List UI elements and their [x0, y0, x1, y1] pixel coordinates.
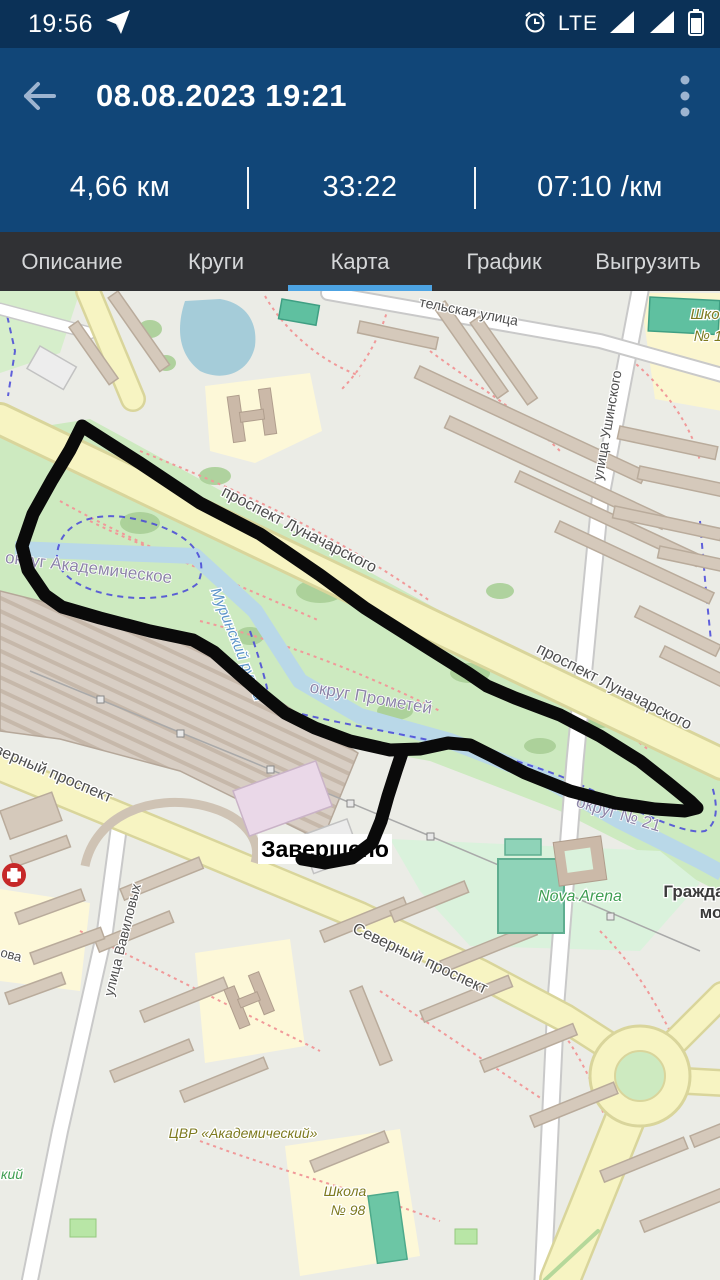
- battery-icon: [688, 8, 704, 41]
- lte-label: LTE: [558, 12, 598, 36]
- signal-icon: [608, 9, 638, 40]
- overflow-menu-button[interactable]: [650, 48, 720, 143]
- page-title: 08.08.2023 19:21: [80, 78, 650, 114]
- app-bar: 08.08.2023 19:21: [0, 48, 720, 143]
- map-label: Гражда: [663, 882, 720, 901]
- map-label: № 98: [331, 1202, 366, 1218]
- roundabout: [590, 1026, 690, 1126]
- stat-duration: 33:22: [240, 171, 480, 204]
- map-label: кий: [1, 1166, 23, 1182]
- map-label: Nova Arena: [538, 888, 622, 905]
- tab-map[interactable]: Карта: [288, 232, 432, 291]
- stats-divider: [247, 167, 249, 209]
- map-canvas: проспект Луначарскогопроспект Луначарско…: [0, 291, 720, 1280]
- workout-stats: 4,66 км 33:22 07:10 /км: [0, 143, 720, 232]
- map-label: ЦВР «Академический»: [169, 1125, 318, 1141]
- hospital-icon: [2, 863, 26, 887]
- map-label: Шко: [690, 306, 719, 323]
- back-arrow-icon: [20, 79, 60, 113]
- tab-laps[interactable]: Круги: [144, 232, 288, 291]
- telegram-icon: [105, 9, 131, 40]
- map-label: № 1: [694, 328, 720, 345]
- status-bar: 19:56 LTE: [0, 0, 720, 48]
- tab-bar: Описание Круги Карта График Выгрузить: [0, 232, 720, 291]
- map-label: мо: [700, 903, 720, 922]
- back-button[interactable]: [0, 48, 80, 143]
- tab-graph[interactable]: График: [432, 232, 576, 291]
- tab-description[interactable]: Описание: [0, 232, 144, 291]
- app-screen: 19:56 LTE: [0, 0, 720, 1280]
- clock-time: 19:56: [28, 10, 93, 39]
- map-view[interactable]: проспект Луначарскогопроспект Луначарско…: [0, 291, 720, 1280]
- stats-divider: [474, 167, 476, 209]
- signal-icon-2: [648, 9, 678, 40]
- stat-pace: 07:10 /км: [480, 171, 720, 204]
- header: 08.08.2023 19:21 4,66 км 33:22 07:10 /км: [0, 48, 720, 232]
- alarm-icon: [522, 9, 548, 40]
- stat-distance: 4,66 км: [0, 171, 240, 204]
- kebab-icon: [680, 75, 690, 117]
- map-label: Школа: [324, 1183, 367, 1199]
- tab-export[interactable]: Выгрузить: [576, 232, 720, 291]
